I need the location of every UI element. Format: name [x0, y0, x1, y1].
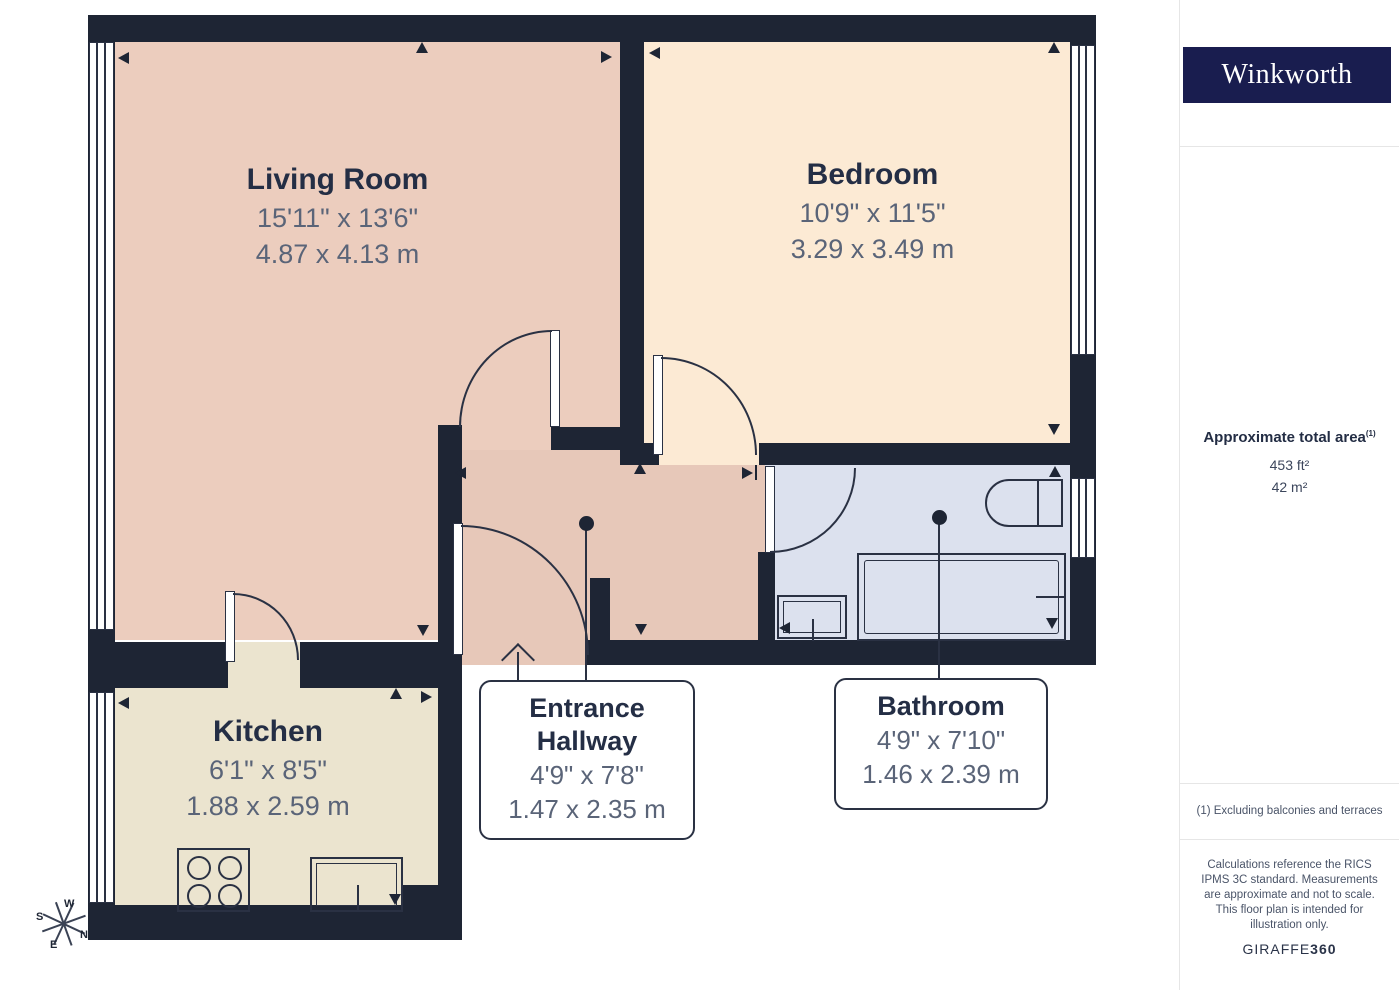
divider — [1180, 146, 1399, 147]
hallway-leader-dot — [579, 516, 594, 531]
window-pane-line — [96, 693, 98, 902]
winkworth-logo-text: Winkworth — [1222, 59, 1353, 91]
dimension-arrow — [390, 688, 402, 699]
total-area-title: Approximate total area — [1203, 429, 1366, 446]
compass-south: S — [36, 911, 43, 923]
dimension-end-bar — [755, 465, 757, 480]
kitchen-label: Kitchen 6'1" x 8'5" 1.88 x 2.59 m — [118, 712, 418, 824]
room-dim-imperial: 4'9" x 7'8" — [481, 758, 693, 792]
compass-north: N — [80, 929, 88, 941]
window-pane-line — [1085, 479, 1087, 557]
room-dim-metric: 1.47 x 2.35 m — [481, 792, 693, 826]
window-pane-line — [104, 693, 106, 902]
stove — [177, 848, 250, 912]
window — [1071, 478, 1095, 558]
window — [1071, 45, 1095, 355]
compass-east: E — [50, 939, 57, 951]
bathtub — [857, 553, 1066, 641]
wall-segment — [88, 15, 1096, 42]
burner-icon — [187, 856, 211, 880]
window-pane-line — [1078, 479, 1080, 557]
living-room-label: Living Room 15'11" x 13'6" 4.87 x 4.13 m — [150, 160, 525, 272]
bathroom-leader-dot — [932, 510, 947, 525]
wall-segment — [403, 885, 462, 907]
burner-icon — [218, 856, 242, 880]
dimension-arrow — [1048, 42, 1060, 53]
dimension-arrow — [455, 467, 466, 479]
dimension-arrow — [417, 625, 429, 636]
dimension-arrow — [421, 691, 432, 703]
wall-segment — [88, 905, 462, 940]
room-name: Kitchen — [118, 712, 418, 752]
room-dim-imperial: 6'1" x 8'5" — [118, 752, 418, 788]
bath-tap-icon — [1036, 596, 1064, 598]
window-pane-line — [1078, 46, 1080, 354]
bedroom-label: Bedroom 10'9" x 11'5" 3.29 x 3.49 m — [715, 155, 1030, 267]
dimension-arrow — [634, 463, 646, 474]
dimension-arrow — [1048, 424, 1060, 435]
disclaimer-text: Calculations reference the RICS IPMS 3C … — [1198, 858, 1381, 933]
room-name: Living Room — [150, 160, 525, 200]
room-dim-metric: 4.87 x 4.13 m — [150, 236, 525, 272]
burner-icon — [187, 884, 211, 908]
bathroom-tap-icon — [812, 619, 814, 641]
giraffe360-credit: GIRAFFE360 — [1180, 941, 1399, 957]
dimension-arrow — [389, 894, 401, 905]
wall-segment — [758, 552, 775, 642]
room-dim-metric: 1.88 x 2.59 m — [118, 788, 418, 824]
total-area-marker: (1) — [1366, 429, 1376, 438]
bathtub-inner — [864, 560, 1059, 634]
room-dim-metric: 3.29 x 3.49 m — [715, 231, 1030, 267]
dimension-arrow — [635, 624, 647, 635]
room-dim-metric: 1.46 x 2.39 m — [836, 757, 1046, 791]
hallway-floor-east — [644, 465, 766, 640]
divider — [1180, 783, 1399, 784]
compass-west: W — [64, 898, 74, 910]
entrance-hallway-callout: Entrance Hallway 4'9" x 7'8" 1.47 x 2.35… — [479, 680, 695, 840]
giraffe360-name: GIRAFFE — [1242, 941, 1310, 957]
dimension-arrow — [416, 42, 428, 53]
dimension-arrow — [649, 47, 660, 59]
dimension-arrow — [118, 697, 129, 709]
room-dim-imperial: 10'9" x 11'5" — [715, 195, 1030, 231]
wall-segment — [620, 42, 644, 450]
total-area-metric: 42 m² — [1180, 478, 1399, 496]
dimension-arrow — [1046, 618, 1058, 629]
burner-icon — [218, 884, 242, 908]
room-name: Bathroom — [836, 690, 1046, 723]
bathroom-callout: Bathroom 4'9" x 7'10" 1.46 x 2.39 m — [834, 678, 1048, 810]
divider — [1180, 839, 1399, 840]
area-footnote: (1) Excluding balconies and terraces — [1188, 804, 1391, 819]
window — [89, 42, 114, 630]
window-pane-line — [1085, 46, 1087, 354]
total-area-imperial: 453 ft² — [1180, 456, 1399, 474]
wall-segment — [590, 578, 610, 640]
window-pane-line — [96, 43, 98, 629]
toilet-tank — [1037, 479, 1063, 527]
window — [89, 692, 114, 903]
kitchen-tap-icon — [357, 885, 359, 912]
window-pane-line — [104, 43, 106, 629]
hallway-leader-line — [585, 525, 587, 681]
winkworth-logo: Winkworth — [1183, 47, 1391, 103]
room-name: Entrance Hallway — [481, 692, 693, 758]
dimension-arrow — [118, 52, 129, 64]
room-name: Bedroom — [715, 155, 1030, 195]
dimension-arrow — [1049, 466, 1061, 477]
total-area-block: Approximate total area(1) 453 ft² 42 m² — [1180, 424, 1399, 496]
toilet — [985, 479, 1039, 527]
bathroom-leader-line — [938, 519, 940, 679]
room-dim-imperial: 15'11" x 13'6" — [150, 200, 525, 236]
dimension-arrow — [742, 467, 753, 479]
dimension-arrow — [779, 622, 790, 634]
room-dim-imperial: 4'9" x 7'10" — [836, 723, 1046, 757]
floor-plan-page: Living Room 15'11" x 13'6" 4.87 x 4.13 m… — [0, 0, 1399, 990]
wall-segment — [620, 427, 644, 465]
dimension-arrow — [601, 51, 612, 63]
giraffe360-suffix: 360 — [1310, 941, 1336, 957]
